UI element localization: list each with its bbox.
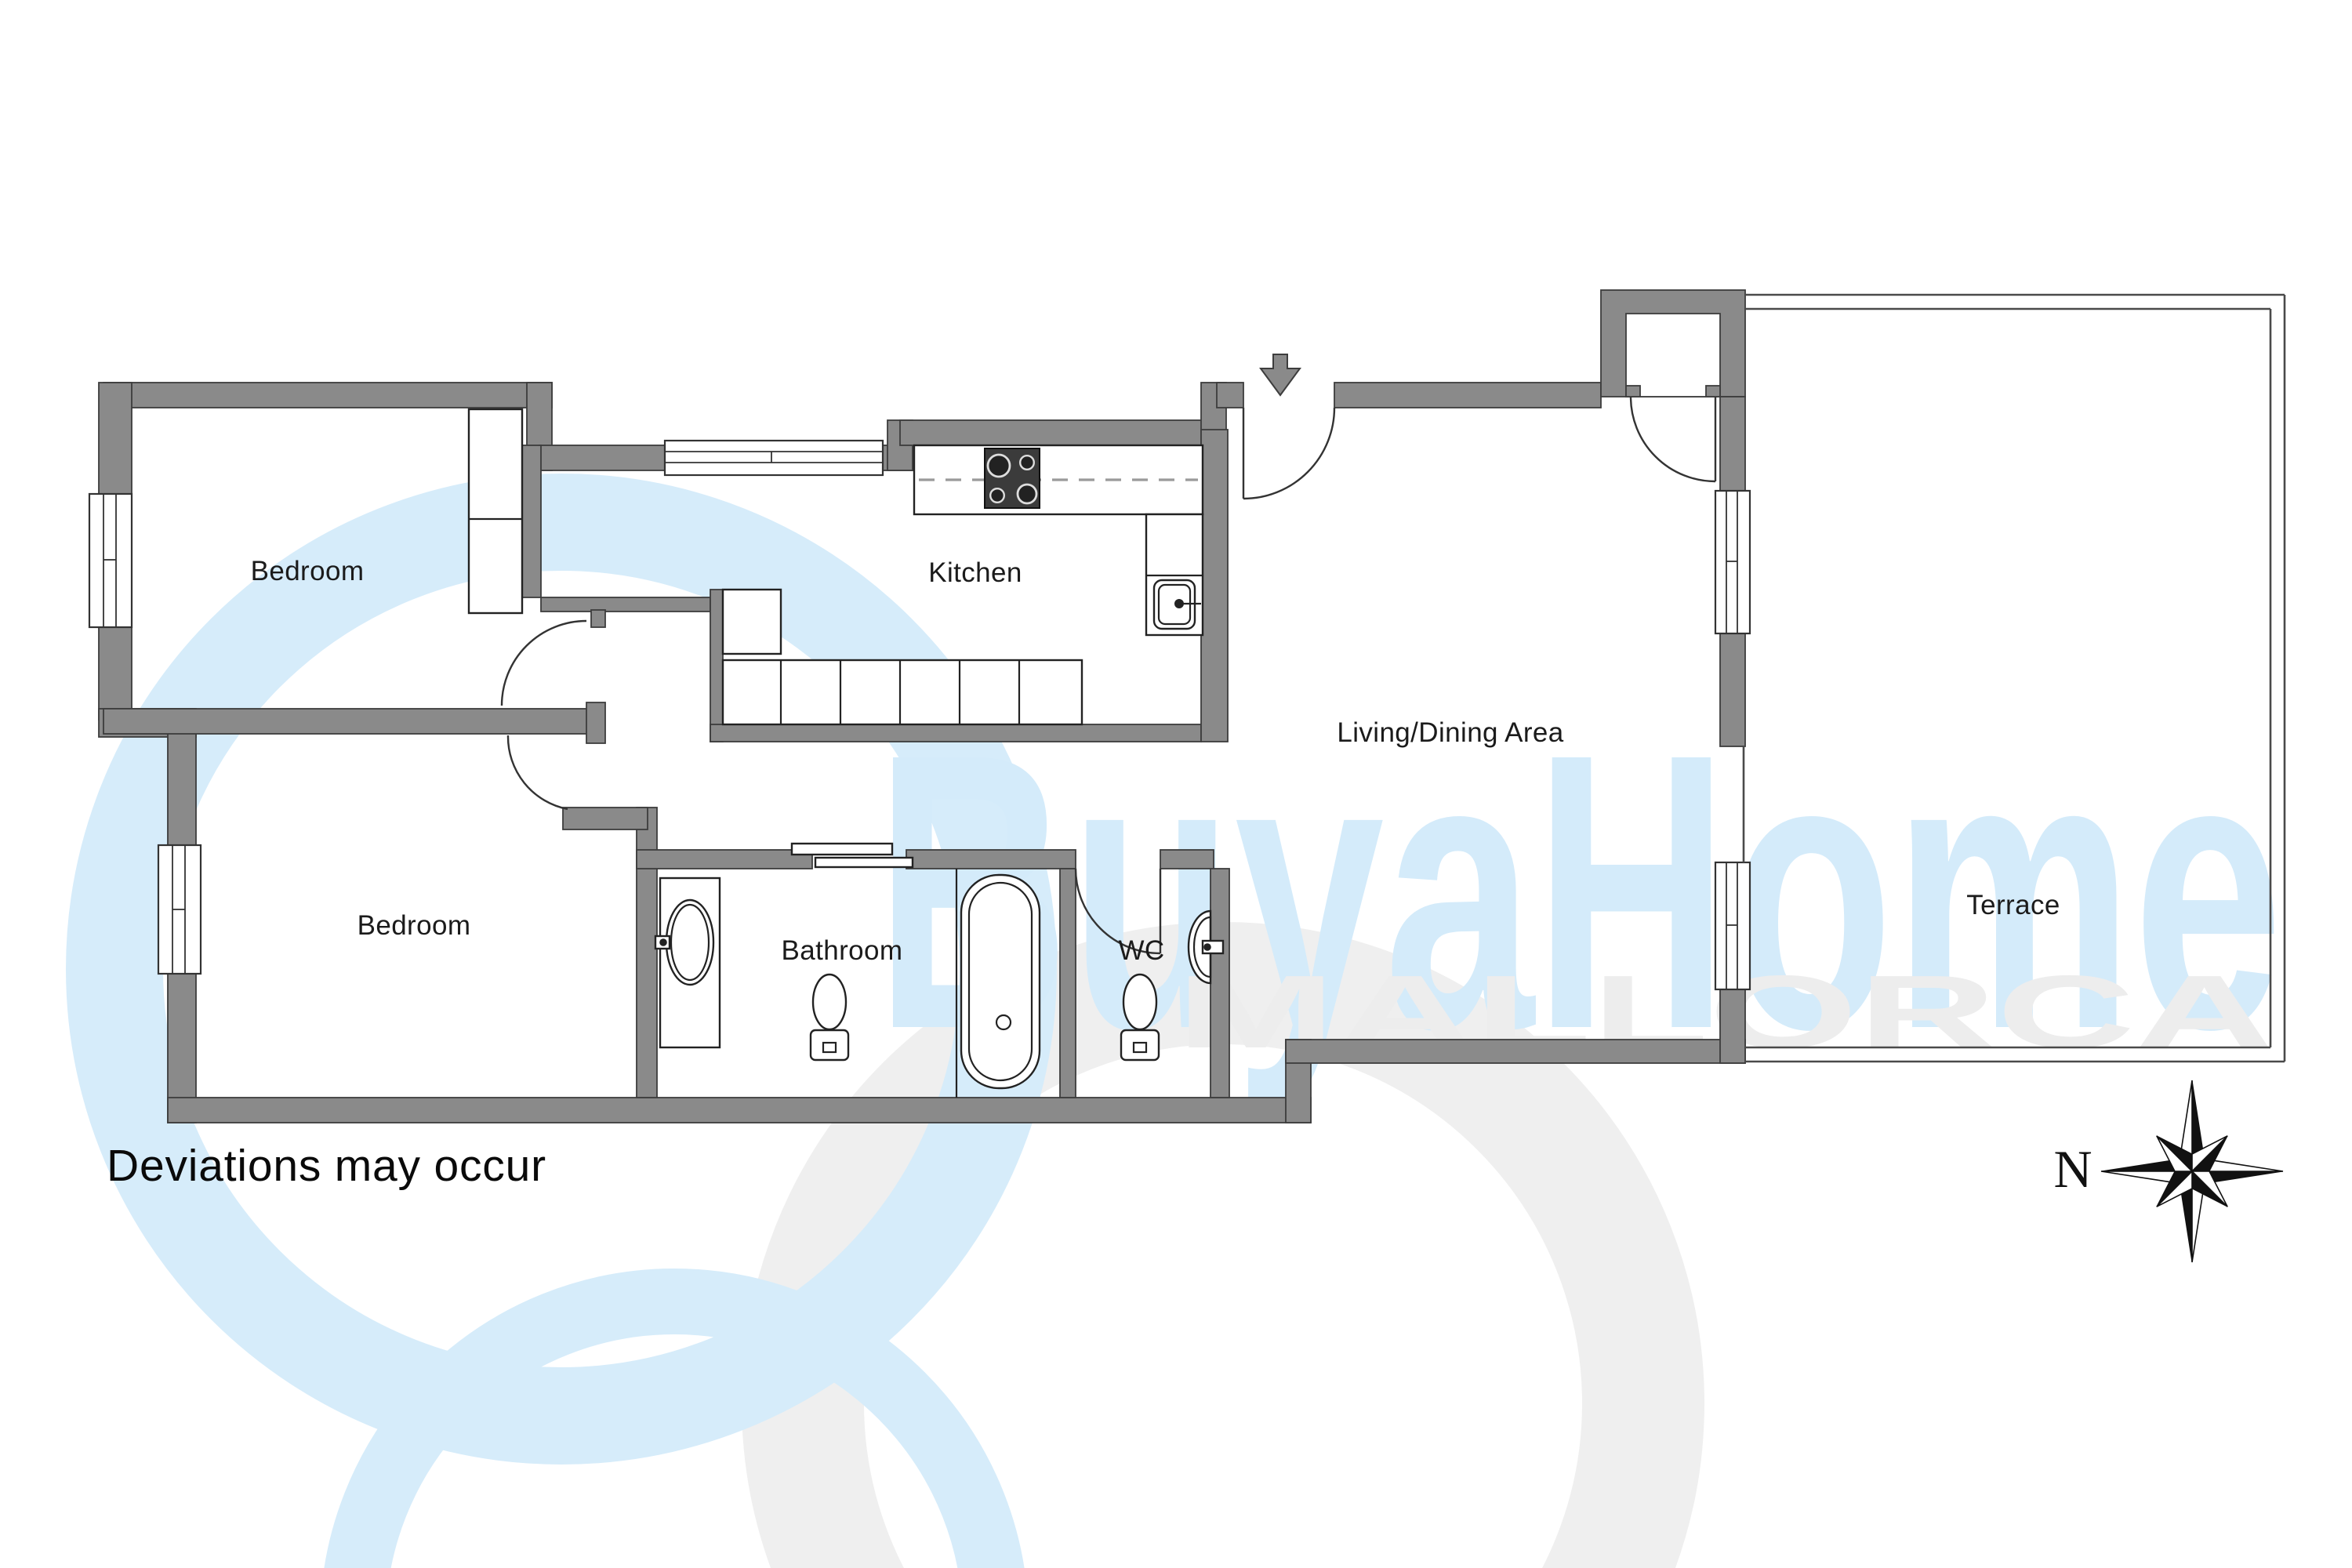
label-wc: WC bbox=[1118, 935, 1164, 966]
window-icon bbox=[1715, 862, 1750, 989]
toilet-icon bbox=[1121, 975, 1159, 1060]
wall-bathroom-north-2 bbox=[906, 850, 1076, 869]
bathtub-icon bbox=[956, 869, 1040, 1098]
wall-bathroom-north-1 bbox=[637, 850, 812, 869]
wall-terrace-3 bbox=[1720, 989, 1745, 1063]
wall-bedroom1-left-lower bbox=[99, 627, 132, 720]
wardrobe-icon bbox=[469, 409, 522, 613]
wall-kitchen-peninsula bbox=[710, 590, 723, 742]
label-living: Living/Dining Area bbox=[1337, 717, 1563, 748]
wall-bedroom2-door-stub bbox=[563, 808, 648, 829]
hall-jamb bbox=[586, 702, 605, 743]
wall-north-left bbox=[539, 445, 665, 470]
watermark: BuyaHome MALLORCA bbox=[114, 522, 2283, 1568]
wall-entry-left bbox=[1217, 383, 1243, 408]
wall-terrace-2 bbox=[1720, 633, 1745, 746]
wall-bedroom1-top bbox=[103, 383, 552, 408]
bedroom2-door-swing-icon[interactable] bbox=[508, 735, 568, 809]
wall-wc-east bbox=[1210, 869, 1229, 1098]
window-icon bbox=[665, 441, 883, 475]
kitchen-sink-icon bbox=[1146, 514, 1203, 635]
niche-jamb-left bbox=[1626, 386, 1640, 397]
label-kitchen: Kitchen bbox=[928, 557, 1022, 588]
wall-bedroom2-left-upper bbox=[168, 731, 196, 845]
label-bedroom-top: Bedroom bbox=[251, 556, 365, 586]
terrace-door-swing-icon[interactable] bbox=[1631, 397, 1715, 481]
entry-arrow-icon bbox=[1261, 354, 1300, 395]
terrace-door-niche bbox=[1626, 314, 1720, 397]
window-icon bbox=[158, 845, 201, 974]
floor-plan: BuyaHome MALLORCA bbox=[0, 0, 2352, 1568]
entry-door-swing-icon[interactable] bbox=[1243, 408, 1334, 499]
stove-icon bbox=[985, 448, 1040, 508]
wall-bottom-left bbox=[168, 1098, 1311, 1123]
disclaimer-text: Deviations may occur bbox=[107, 1141, 546, 1191]
wall-bedrooms-divider bbox=[103, 709, 590, 734]
bathroom-sink-icon bbox=[655, 878, 720, 1047]
kitchen-counter bbox=[914, 445, 1203, 514]
bedroom1-door-swing-icon[interactable] bbox=[502, 621, 586, 706]
wall-bedroom1-left-upper bbox=[99, 383, 132, 494]
watermark-blue-ring-icon bbox=[114, 522, 1008, 1416]
label-terrace: Terrace bbox=[1966, 890, 2060, 920]
toilet-icon bbox=[811, 975, 848, 1060]
wall-closet-bottom bbox=[541, 597, 710, 612]
wall-kitchen-south bbox=[710, 724, 1201, 742]
compass-north-label: N bbox=[2053, 1139, 2092, 1199]
window-icon bbox=[89, 494, 132, 627]
label-bathroom: Bathroom bbox=[782, 935, 903, 966]
niche-jamb-right bbox=[1706, 386, 1720, 397]
window-icon bbox=[1715, 491, 1750, 633]
wall-terrace-1 bbox=[1720, 397, 1745, 491]
wall-kitchen-right bbox=[1201, 430, 1228, 742]
wall-wc-north bbox=[1160, 850, 1214, 869]
wall-bedroom1-right bbox=[522, 445, 541, 597]
wall-wc-west bbox=[1060, 869, 1076, 1098]
wall-living-bottom bbox=[1286, 1040, 1745, 1063]
label-bedroom-bottom: Bedroom bbox=[358, 910, 471, 941]
wall-entry-right bbox=[1334, 383, 1601, 408]
closet-jamb bbox=[591, 610, 605, 627]
wall-kitchen-exterior bbox=[900, 420, 1217, 445]
